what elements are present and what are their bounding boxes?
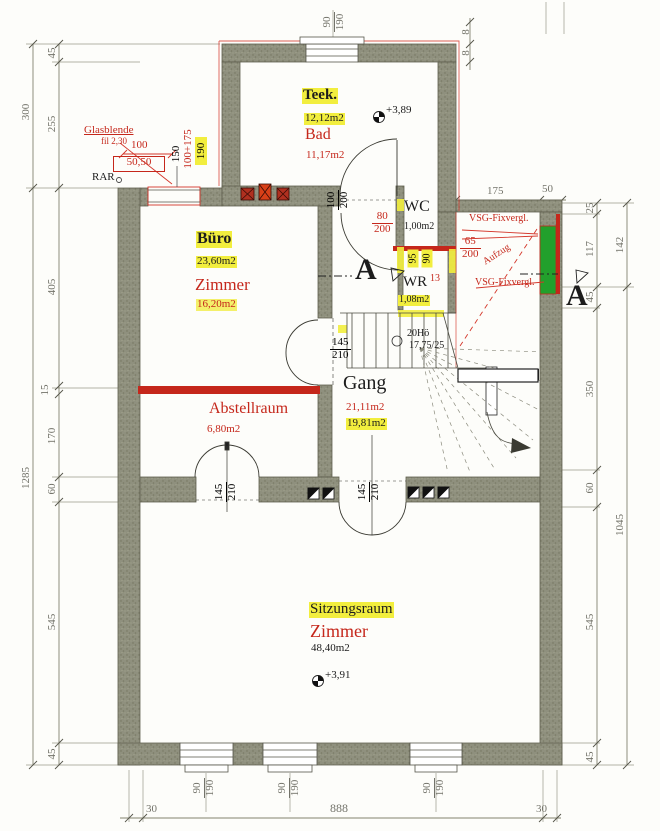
door-dim-buero: 145 210	[330, 337, 351, 362]
level-label-bad: +3,89	[386, 105, 411, 117]
dim-right-outer-1045: 1045	[614, 507, 626, 543]
room-area-wc: 1,00m2	[404, 222, 434, 233]
window-dim-bottom3-w: 90	[422, 778, 435, 799]
fil-label: fil 2,30	[101, 137, 127, 146]
dim-left-60: 60	[46, 475, 58, 503]
glasblende-label: Glasblende	[84, 125, 133, 137]
door-dim-abstellraum-w: 145	[214, 482, 227, 503]
window-dim-bottom1-w: 90	[192, 778, 205, 799]
dim-bottom-30-left: 30	[146, 804, 157, 816]
dim-bottom-30-right: 30	[536, 804, 547, 816]
window-dim-bottom3: 90190	[421, 771, 447, 805]
room-area-gang: 21,11m2	[346, 402, 384, 414]
room-area-bad: 11,17m2	[306, 150, 344, 162]
dim-150-label: 150	[170, 140, 182, 168]
room-area-abstellraum: 6,80m2	[207, 424, 240, 436]
dim-left-outer-300: 300	[20, 97, 32, 127]
room-name-wr: WR	[403, 275, 427, 291]
section-marks	[117, 166, 589, 283]
room-name-bad: Bad	[305, 127, 331, 144]
door-dim-buero-h: 210	[330, 350, 351, 362]
room-name-buero-zimmer: Zimmer	[195, 276, 250, 294]
door-dim-wc-h: 200	[372, 224, 393, 236]
dim-left-45a: 45	[46, 39, 58, 67]
door-dim-bad-h: 200	[339, 190, 351, 211]
dim-right-45a: 45	[584, 283, 596, 311]
num-13-label: 13	[430, 274, 440, 285]
dim-100-label: 100	[131, 140, 148, 152]
dim-bottom-888: 888	[330, 802, 348, 815]
room-name-teek: Teek.	[302, 88, 338, 104]
num-95-label: 95	[408, 250, 419, 268]
door-dim-wc-w: 80	[372, 211, 393, 224]
window-dim-bottom3-h: 190	[435, 778, 447, 799]
door-dim-sitzungsraum-w: 145	[357, 482, 370, 503]
rar-label: RAR	[92, 172, 115, 184]
window-dim-bottom1-h: 190	[205, 778, 217, 799]
dim-left-outer-1285: 1285	[20, 458, 32, 498]
dim-175: 175	[487, 186, 504, 198]
dim-right-60: 60	[584, 474, 596, 502]
door-dim-aufzug: 65 200	[460, 236, 481, 261]
dim-right-outer-142: 142	[614, 230, 626, 260]
dim-right-117: 117	[584, 235, 596, 263]
door-dim-aufzug-w: 65	[460, 236, 481, 249]
window-dim-bottom2-h: 190	[290, 778, 302, 799]
dim-left-545: 545	[46, 608, 58, 636]
door-dim-sitzungsraum: 145210	[356, 475, 382, 509]
room-area-sitzungsraum: 48,40m2	[311, 643, 350, 655]
red-wall-marking	[138, 386, 320, 394]
stair-steps-label: 20Hö	[407, 329, 429, 340]
floorplan-page: Teek. 12,12m2 Bad 11,17m2 +3,89 Glasblen…	[0, 0, 660, 831]
room-name-abstellraum: Abstellraum	[209, 401, 288, 418]
door-dim-sitzungsraum-h: 210	[370, 482, 382, 503]
dim-left-15: 15	[39, 379, 51, 401]
window-dim-bottom1: 90190	[191, 771, 217, 805]
room-area-teek: 12,12m2	[304, 113, 345, 125]
dim-left-405: 405	[46, 273, 58, 301]
glazing-bar	[458, 369, 538, 382]
window-dim-top-w: 90	[322, 12, 335, 33]
window-dim-bottom2: 90190	[276, 771, 302, 805]
dim-right-45b: 45	[584, 743, 596, 771]
door-dim-abstellraum: 145210	[213, 475, 239, 509]
room-name-buero: Büro	[196, 231, 232, 248]
room-name-sitzungsraum-zimmer: Zimmer	[310, 622, 368, 641]
dim-190-label: 190	[195, 137, 207, 165]
dim-50: 50	[542, 184, 553, 196]
window-dim-top: 90190	[321, 5, 347, 39]
dim-right-545: 545	[584, 608, 596, 636]
door-dim-buero-w: 145	[330, 337, 351, 350]
door-dim-aufzug-h: 200	[460, 249, 481, 261]
vsg-label-bottom: VSG-Fixvergl.	[475, 278, 535, 289]
vsg-label-top: VSG-Fixvergl.	[469, 214, 529, 225]
window-dim-bottom2-w: 90	[277, 778, 290, 799]
door-dim-abstellraum-h: 210	[227, 482, 239, 503]
level-label-sitzungsraum: +3,91	[325, 670, 350, 682]
dim-left-170: 170	[46, 422, 58, 450]
door-dim-bad-w: 100	[326, 190, 339, 211]
room-name-wc: WC	[404, 199, 430, 216]
dim-8-bottom: 8	[460, 46, 472, 60]
dim-5050-label: 50,50	[113, 156, 165, 172]
room-area-buero-zimmer: 16,20m2	[196, 299, 237, 311]
num-90-label: 90	[422, 250, 433, 268]
green-wall-marking	[540, 226, 556, 294]
door-dim-bad: 100200	[325, 183, 351, 217]
dim-left-45b: 45	[46, 740, 58, 768]
room-area-gang-alt: 19,81m2	[346, 418, 387, 430]
dim-right-350: 350	[584, 375, 596, 403]
dim-right-25: 25	[584, 194, 596, 222]
dim-left-255: 255	[46, 110, 58, 138]
room-area-buero: 23,60m2	[196, 256, 237, 268]
dim-100-175-label: 100+175	[182, 125, 194, 173]
color-overlays	[138, 199, 560, 394]
stair-ratio-label: 17,75/25	[409, 341, 444, 352]
room-name-sitzungsraum: Sitzungsraum	[309, 602, 394, 618]
room-name-gang: Gang	[343, 373, 386, 394]
room-area-wr: 1,08m2	[398, 295, 430, 306]
dim-8-top: 8	[460, 25, 472, 39]
door-dim-wc: 80 200	[372, 211, 393, 236]
window-dim-top-h: 190	[335, 12, 347, 33]
section-marker-a-left: A	[355, 254, 377, 286]
